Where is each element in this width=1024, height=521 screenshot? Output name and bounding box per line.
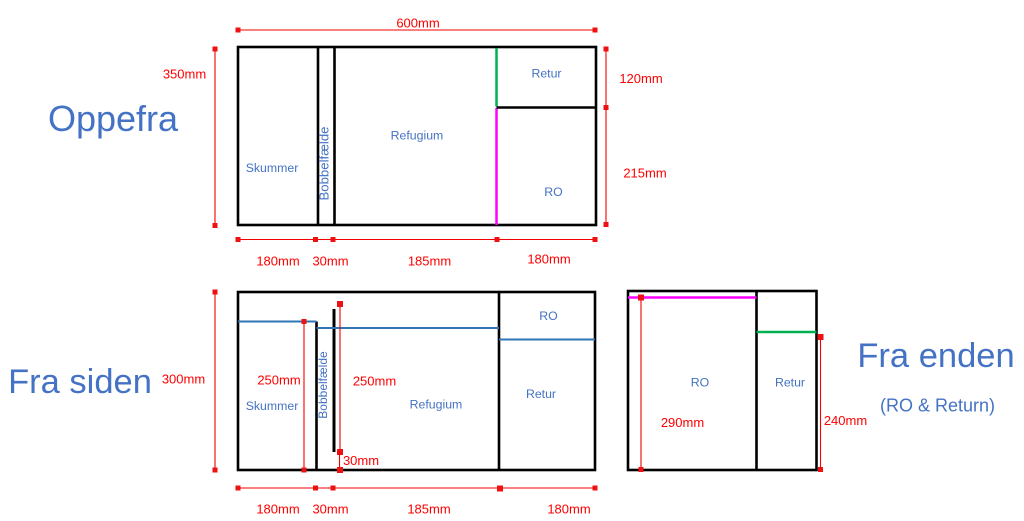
svg-text:30mm: 30mm: [343, 453, 379, 468]
svg-text:180mm: 180mm: [527, 252, 570, 267]
svg-text:185mm: 185mm: [408, 254, 451, 269]
svg-text:215mm: 215mm: [623, 166, 666, 181]
svg-text:Fra enden: Fra enden: [857, 337, 1014, 375]
svg-text:250mm: 250mm: [353, 374, 396, 389]
svg-text:350mm: 350mm: [163, 67, 206, 82]
svg-text:Bobbelfælde: Bobbelfælde: [316, 351, 330, 419]
svg-text:Bobbelfælde: Bobbelfælde: [317, 126, 332, 200]
svg-text:Retur: Retur: [526, 387, 556, 401]
svg-text:RO: RO: [544, 185, 562, 199]
svg-text:300mm: 300mm: [162, 372, 205, 387]
svg-text:Fra siden: Fra siden: [8, 363, 152, 401]
svg-text:120mm: 120mm: [619, 71, 662, 86]
svg-text:180mm: 180mm: [256, 502, 299, 517]
svg-text:30mm: 30mm: [312, 502, 348, 517]
svg-text:290mm: 290mm: [661, 415, 704, 430]
svg-text:(RO & Return): (RO & Return): [880, 396, 995, 416]
svg-text:185mm: 185mm: [407, 502, 450, 517]
svg-text:RO: RO: [691, 376, 709, 390]
svg-text:180mm: 180mm: [547, 502, 590, 517]
svg-text:Skummer: Skummer: [246, 399, 299, 413]
svg-text:Oppefra: Oppefra: [48, 98, 179, 139]
svg-text:Skummer: Skummer: [246, 161, 299, 175]
svg-text:600mm: 600mm: [396, 16, 439, 31]
svg-text:Refugium: Refugium: [391, 129, 444, 143]
svg-text:240mm: 240mm: [824, 413, 867, 428]
svg-text:30mm: 30mm: [312, 254, 348, 269]
svg-text:RO: RO: [539, 309, 557, 323]
svg-text:Refugium: Refugium: [410, 398, 463, 412]
svg-text:180mm: 180mm: [256, 254, 299, 269]
svg-text:Retur: Retur: [531, 67, 561, 81]
svg-text:250mm: 250mm: [257, 373, 300, 388]
svg-text:Retur: Retur: [775, 376, 805, 390]
